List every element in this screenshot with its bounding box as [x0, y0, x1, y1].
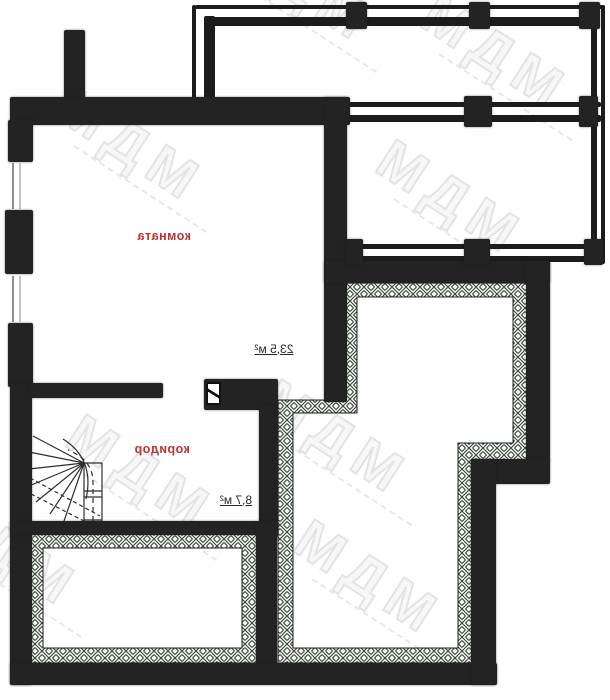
room-area-koridor: 8,7 м² [186, 493, 286, 507]
room-area-komnata: 23,5 м² [228, 342, 320, 356]
room-label-koridor: коридор [102, 442, 222, 456]
room-label-komnata: комната [104, 229, 224, 243]
label-layer: комната 23,5 м² коридор 8,7 м² [0, 0, 610, 700]
floor-plan: МДМ МДМ МДМ МДМ МДМ МДМ МДМ МДМ [0, 0, 610, 700]
